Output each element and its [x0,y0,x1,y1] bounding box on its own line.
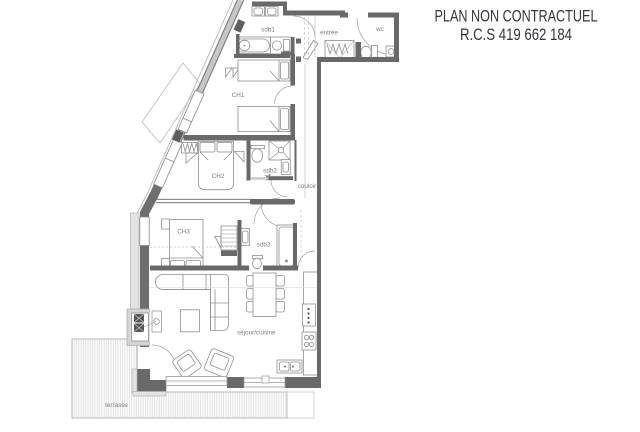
svg-text:terrasse: terrasse [105,402,128,409]
svg-text:CH1: CH1 [232,92,245,99]
svg-text:wc: wc [375,26,384,33]
svg-text:entrée: entrée [320,30,338,37]
svg-text:séjour/cuisine: séjour/cuisine [237,330,276,337]
svg-text:CH3: CH3 [177,229,190,236]
svg-text:CH2: CH2 [212,173,225,180]
svg-text:PLAN NON CONTRACTUEL: PLAN NON CONTRACTUEL [435,8,598,26]
svg-text:couloir: couloir [298,183,317,190]
svg-text:sdb1: sdb1 [261,27,275,34]
svg-text:R.C.S 419 662 184: R.C.S 419 662 184 [460,26,572,44]
svg-text:sdb2: sdb2 [263,168,277,175]
svg-text:sdb3: sdb3 [257,242,271,249]
